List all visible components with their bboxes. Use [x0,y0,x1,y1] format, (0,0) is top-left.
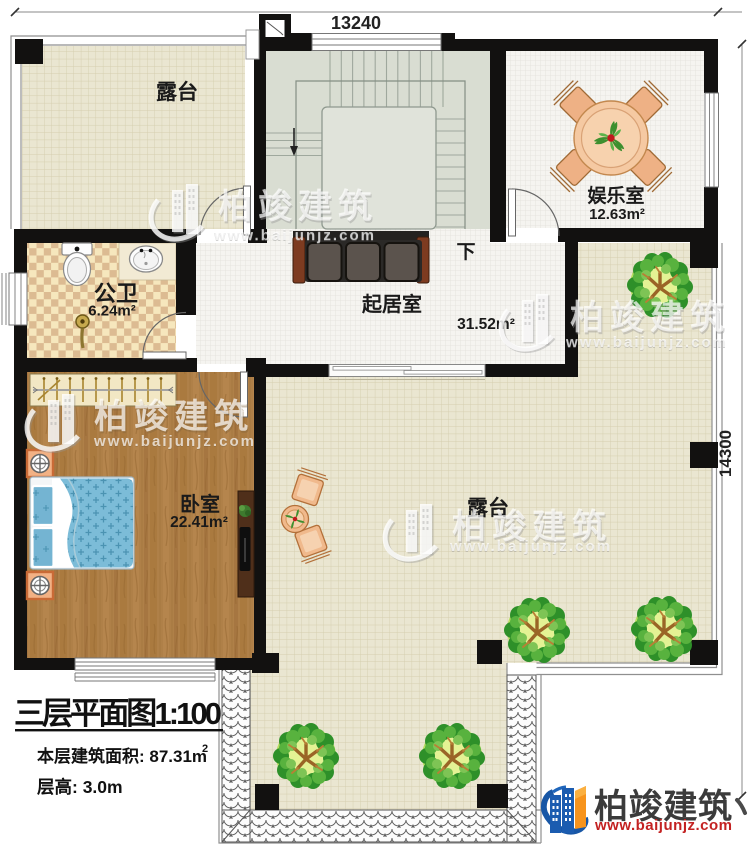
svg-text:柏竣建筑: 柏竣建筑 [218,187,378,226]
svg-text:本层建筑面积: 87.31m: 本层建筑面积: 87.31m [37,746,207,766]
svg-text:www.baijunjz.com: www.baijunjz.com [93,433,256,450]
svg-text:2: 2 [202,743,208,755]
svg-text:三层平面图1:100: 三层平面图1:100 [14,696,222,731]
svg-text:14300: 14300 [716,430,735,477]
svg-text:12.63m²: 12.63m² [589,206,645,223]
svg-text:www.baijunjz.com: www.baijunjz.com [449,538,612,555]
svg-text:卧室: 卧室 [180,492,220,516]
svg-text:起居室: 起居室 [361,292,422,316]
svg-text:www.baijunjz.com: www.baijunjz.com [565,334,728,351]
svg-text:6.24m²: 6.24m² [88,303,136,320]
svg-text:13240: 13240 [331,13,381,33]
svg-text:下: 下 [456,242,475,263]
svg-text:www.baijunjz.com: www.baijunjz.com [594,817,732,834]
svg-text:露台: 露台 [156,80,198,104]
svg-text:柏竣建筑: 柏竣建筑 [570,298,730,337]
svg-text:娱乐室: 娱乐室 [587,184,644,207]
svg-text:22.41m²: 22.41m² [170,514,228,531]
svg-text:www.baijunjz.com: www.baijunjz.com [213,227,376,244]
svg-text:层高: 3.0m: 层高: 3.0m [37,777,123,797]
svg-text:柏竣建筑: 柏竣建筑 [94,397,254,436]
